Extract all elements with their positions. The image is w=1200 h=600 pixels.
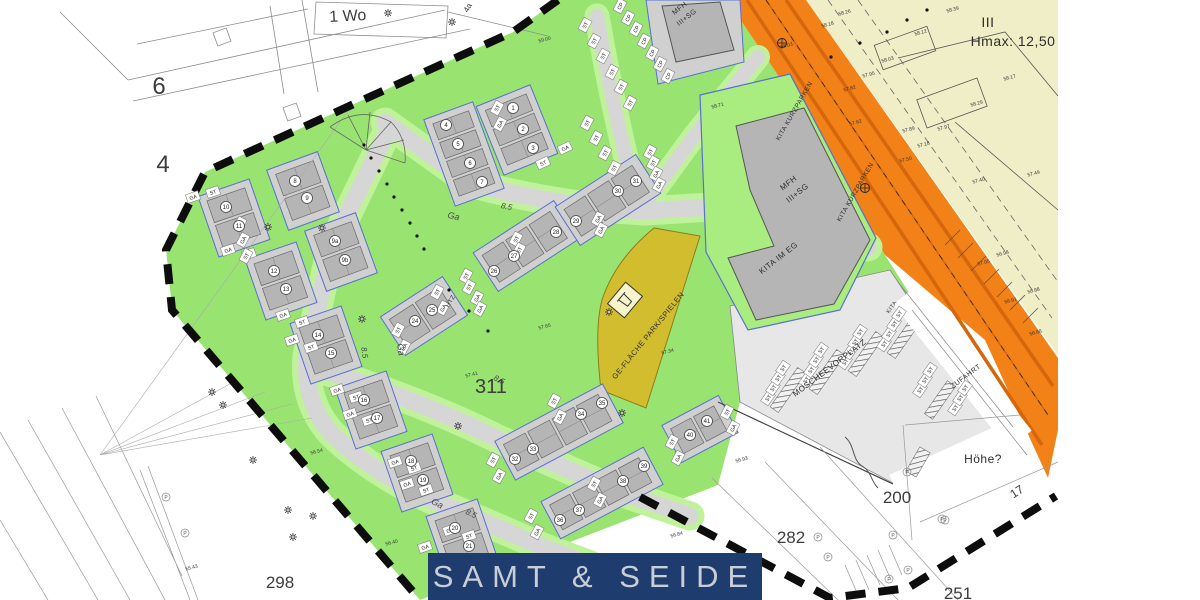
site-plan-page: PPPPPPPPPP CPCPCPCPCPCPCPSTSTSTSTSTSTSTS… xyxy=(0,0,1200,600)
plot-number: 29 xyxy=(571,216,582,227)
plot-number-text: 15 xyxy=(328,351,335,357)
survey-dot xyxy=(408,221,411,224)
plot-number: 20 xyxy=(450,523,461,534)
plot-number-text: 39 xyxy=(641,464,648,470)
plot-number-text: 34 xyxy=(578,412,585,418)
plot-number-text: 32 xyxy=(512,457,519,463)
plot-number: 24 xyxy=(410,316,421,327)
plot-number: 2 xyxy=(518,124,529,135)
survey-dot xyxy=(885,30,888,33)
plot-number-text: 13 xyxy=(283,287,290,293)
tree-icon xyxy=(309,512,317,520)
survey-dot xyxy=(925,8,928,11)
survey-dot xyxy=(377,169,380,172)
plot-number: 5 xyxy=(453,139,464,150)
plot-number-text: 36 xyxy=(557,518,564,524)
tree-icon xyxy=(618,409,626,417)
plot-number: 38 xyxy=(618,476,629,487)
plot-number: 41 xyxy=(702,416,713,427)
plot-number: 18 xyxy=(406,456,417,467)
plot-number: 16 xyxy=(359,395,370,406)
tree-icon xyxy=(605,308,613,316)
plot-number: 37 xyxy=(574,505,585,516)
plot-number-text: 37 xyxy=(576,508,583,514)
plot-number: 14 xyxy=(313,330,324,341)
plot-number: 11 xyxy=(234,221,245,232)
tree-icon xyxy=(249,456,257,464)
tree-icon xyxy=(448,18,456,26)
plot-number-text: 17 xyxy=(374,416,381,422)
area-number: 251 xyxy=(944,584,972,600)
plot-number-text: 20 xyxy=(452,526,459,532)
plot-number: 27 xyxy=(509,251,520,262)
plot-number-text: 35 xyxy=(599,401,606,407)
plot-number: 35 xyxy=(597,398,608,409)
tree-icon xyxy=(289,533,297,541)
plot-number: 6 xyxy=(465,158,476,169)
plot-number: 9a xyxy=(330,236,341,247)
plot-number: 28 xyxy=(551,227,562,238)
plot-number: 10 xyxy=(221,202,232,213)
area-number: 200 xyxy=(883,488,911,507)
survey-dot xyxy=(905,18,908,21)
plot-number: 1 xyxy=(508,103,519,114)
plot-number-text: 33 xyxy=(530,447,537,453)
plot-number-text: 40 xyxy=(687,433,694,439)
street-label: 8.5 xyxy=(359,347,370,360)
plot-number-text: 9a xyxy=(332,239,339,245)
survey-dot xyxy=(467,309,470,312)
plot-number: 9 xyxy=(302,193,313,204)
plot-number-text: 38 xyxy=(620,479,627,485)
plot-number-text: 21 xyxy=(466,544,473,550)
plot-number: 19 xyxy=(418,475,429,486)
plot-number-text: 18 xyxy=(408,459,415,465)
plot-number: 40 xyxy=(685,430,696,441)
survey-dot xyxy=(400,208,403,211)
plot-number: 39 xyxy=(639,461,650,472)
plot-number-text: 16 xyxy=(361,398,368,404)
plot-number: 36 xyxy=(555,515,566,526)
plot-number-text: 31 xyxy=(633,179,640,185)
area-number: 4 xyxy=(156,151,169,178)
brand-banner-text: SAMT & SEIDE xyxy=(433,559,758,595)
tree-icon xyxy=(358,315,366,323)
zone-label: III xyxy=(981,14,994,30)
survey-dot xyxy=(858,41,861,44)
tree-icon xyxy=(454,422,462,430)
right-margin xyxy=(1058,0,1200,600)
survey-dot xyxy=(392,195,395,198)
plot-number: 32 xyxy=(510,454,521,465)
survey-dot xyxy=(385,182,388,185)
plot-number: 33 xyxy=(528,444,539,455)
plot-number: 9b xyxy=(340,255,351,266)
plot-number: 13 xyxy=(281,284,292,295)
survey-dot xyxy=(486,329,489,332)
plot-number-text: 11 xyxy=(236,224,243,230)
plot-number: 30 xyxy=(613,186,624,197)
tree-icon xyxy=(384,9,392,17)
plot-number: 25 xyxy=(427,305,438,316)
survey-dot xyxy=(422,247,425,250)
area-number: 282 xyxy=(777,528,805,547)
plot-number-text: 14 xyxy=(315,333,322,339)
plot-number-text: 28 xyxy=(553,230,560,236)
plot-number: 12 xyxy=(269,266,280,277)
plot-number: 8 xyxy=(290,176,301,187)
survey-dot xyxy=(369,156,372,159)
plot-number-text: 27 xyxy=(511,254,518,260)
plot-number: 17 xyxy=(372,413,383,424)
plot-number-text: 9b xyxy=(342,258,349,264)
survey-dot xyxy=(415,234,418,237)
area-number: 6 xyxy=(152,73,165,100)
area-number: 1 Wo xyxy=(329,7,367,26)
zone-label: Höhe? xyxy=(964,452,1002,466)
plot-number-text: 12 xyxy=(271,269,278,275)
plot-number-text: 26 xyxy=(491,269,498,275)
plot-number-text: 10 xyxy=(223,205,230,211)
plot-number-text: 41 xyxy=(704,419,711,425)
survey-dot xyxy=(362,143,365,146)
plot-number-text: 29 xyxy=(573,219,580,225)
tree-icon xyxy=(318,224,326,232)
plot-number-text: 24 xyxy=(412,319,419,325)
plot-number: 15 xyxy=(326,348,337,359)
plot-number: 7 xyxy=(477,177,488,188)
plot-number: 34 xyxy=(576,409,587,420)
plot-number: 26 xyxy=(489,266,500,277)
tree-icon xyxy=(264,223,272,231)
plot-number-text: 19 xyxy=(420,478,427,484)
plot-number: 31 xyxy=(631,176,642,187)
tree-icon xyxy=(219,401,227,409)
plot-number: 3 xyxy=(528,143,539,154)
tree-icon xyxy=(208,388,216,396)
survey-dot xyxy=(447,288,450,291)
area-number: 298 xyxy=(266,573,294,592)
plot-number-text: 25 xyxy=(429,308,436,314)
street-label: Ga xyxy=(395,343,407,356)
plot-number: 4 xyxy=(441,120,452,131)
brand-banner: SAMT & SEIDE xyxy=(428,553,762,600)
plot-number: 21 xyxy=(464,541,475,552)
zone-label: Hmax: 12,50 xyxy=(971,33,1056,49)
site-plan-map: PPPPPPPPPP CPCPCPCPCPCPCPSTSTSTSTSTSTSTS… xyxy=(0,0,1200,600)
plot-number-text: 30 xyxy=(615,189,622,195)
survey-dot xyxy=(829,55,832,58)
tree-icon xyxy=(284,506,292,514)
